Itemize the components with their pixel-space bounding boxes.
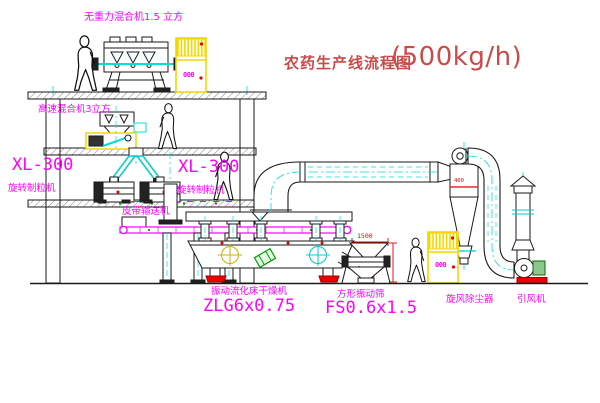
stack-fan-drawing <box>511 172 547 285</box>
exhaust-duct-drawing <box>250 162 452 212</box>
label-sieve-model: FS0.6x1.5 <box>325 300 417 317</box>
label-granulator-left-model: XL-300 <box>12 157 73 174</box>
label-high-speed-mixer: 高速混合机3立方 <box>38 105 111 115</box>
dryer-foot <box>206 276 226 282</box>
label-granulator-right-name: 旋转制粒机 <box>177 186 225 196</box>
label-granulator-right-model: XL-300 <box>178 159 239 176</box>
label-cyclone: 旋风除尘器 <box>446 295 494 305</box>
dryer-foot <box>319 276 339 282</box>
cyclone-duct-dimension: 400 <box>454 179 464 185</box>
label-fan: 引风机 <box>517 295 546 305</box>
drawing-title-capacity: (500kg/h) <box>391 42 522 72</box>
label-belt-conveyor: 皮带输送机 <box>122 207 170 217</box>
label-dryer-model: ZLG6x0.75 <box>203 298 295 315</box>
floor-slab-top <box>28 92 266 99</box>
cabinet2-display: 000 <box>435 262 446 269</box>
cabinet1-indicator-light <box>199 76 202 79</box>
label-granulator-left-name: 旋转制粒机 <box>8 184 56 194</box>
cabinet2-indicator-light <box>451 236 454 239</box>
cabinet2-indicator-light <box>452 265 455 268</box>
fan-motor <box>533 261 545 275</box>
cabinet1-display: 000 <box>183 72 194 79</box>
cad-flow-diagram: 农药生产线流程图 (500kg/h) 无重力混合机1.5 立方 高速混合机3立方… <box>0 0 600 403</box>
stack-cap <box>511 176 535 186</box>
worker-figure-4 <box>408 238 425 282</box>
worker-figure-2 <box>159 104 177 149</box>
cabinet1-indicator-light <box>200 42 203 45</box>
gravity-mixer-drawing <box>92 37 180 92</box>
sieve-feed-dimension: 1500 <box>357 233 373 240</box>
granulator-left-drawing <box>94 177 134 203</box>
label-gravity-mixer: 无重力混合机1.5 立方 <box>84 13 183 23</box>
control-cabinet-1-drawing <box>176 38 206 92</box>
mixer-funnels <box>111 52 155 68</box>
fluid-bed-dryer-drawing <box>186 212 356 282</box>
control-cabinet-2-drawing <box>428 232 458 283</box>
fan-base <box>517 278 547 284</box>
